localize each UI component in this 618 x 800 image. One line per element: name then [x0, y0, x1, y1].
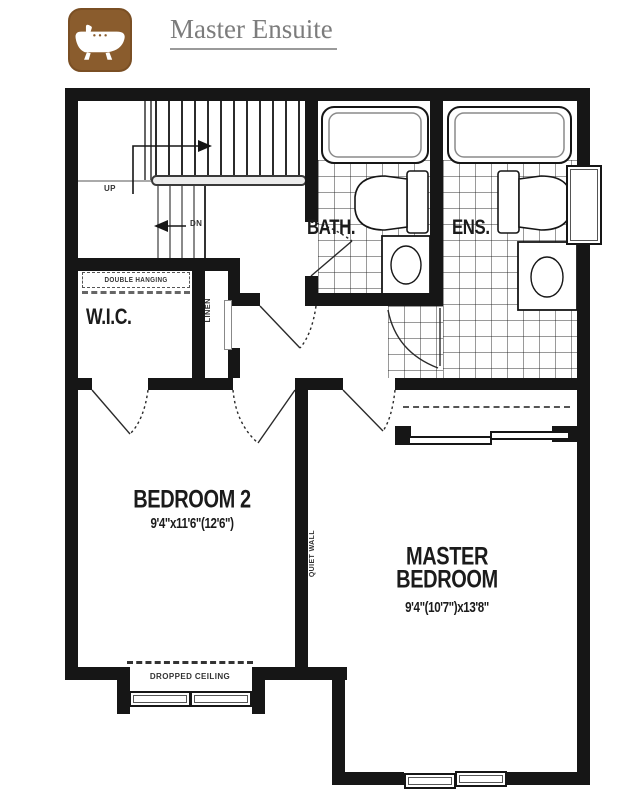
wall: [332, 772, 404, 785]
linen-door: [224, 300, 232, 350]
stair-up-arrowhead: [198, 140, 212, 152]
master-door-arc: [383, 390, 395, 431]
double-hanging-label: DOUBLE HANGING: [104, 277, 167, 284]
ensuite-door-arc: [388, 310, 438, 368]
hall-door-arc: [300, 306, 316, 348]
wall: [430, 101, 443, 306]
wall: [65, 88, 78, 680]
window-pane: [570, 169, 598, 241]
wall: [148, 378, 233, 390]
wic-door-leaf: [92, 390, 130, 434]
stair-up-arrow: [133, 146, 198, 194]
bath-label: BATH.: [307, 216, 367, 240]
ensuite-window: [566, 165, 602, 245]
window-pane: [408, 777, 452, 785]
bedroom2-dimensions: 9'4"x11'6"(12'6"): [140, 516, 244, 532]
bath-door-leaf: [311, 241, 352, 276]
stairs-up-label: UP: [104, 184, 116, 193]
closet-shelf-dashed-line: [403, 406, 570, 408]
floor-plan-page: Master Ensuite: [0, 0, 618, 800]
closet-rod-dashed-line: [82, 291, 190, 294]
bath-tub: [322, 107, 428, 163]
master-label-line2: BEDROOM: [383, 566, 510, 595]
window-pane: [133, 695, 187, 703]
ensuite-vanity-sink: [518, 242, 577, 310]
wall: [65, 258, 240, 271]
linen-label: LINEN: [203, 298, 212, 323]
window-pane: [459, 775, 503, 783]
bedroom2-door-leaf: [258, 390, 295, 443]
wall: [305, 101, 318, 222]
bedroom2-label: BEDROOM 2: [119, 486, 266, 515]
closet-bypass-door: [490, 431, 570, 440]
dropped-ceiling-dashed-line: [127, 661, 253, 664]
stair-dn-arrowhead: [154, 220, 168, 232]
wic-label: W.I.C.: [86, 304, 143, 330]
bay-window: [190, 691, 252, 707]
quiet-wall-label: QUIET WALL: [309, 530, 316, 577]
ensuite-label: ENS.: [452, 216, 499, 240]
wall: [507, 772, 590, 785]
wall: [192, 258, 205, 390]
master-door-leaf: [343, 390, 383, 431]
wall: [228, 258, 240, 302]
ensuite-toilet: [498, 171, 571, 233]
wall: [308, 378, 343, 390]
bath-vanity-sink: [382, 236, 430, 294]
bedroom2-door-arc: [233, 390, 258, 443]
hall-door-leaf: [260, 306, 300, 348]
master-dimensions: 9'4"(10'7")x13'8": [395, 600, 500, 616]
double-hanging-box: DOUBLE HANGING: [82, 272, 190, 288]
wall: [395, 378, 577, 390]
wic-door-arc: [130, 390, 148, 434]
wall: [316, 293, 443, 306]
window-pane: [194, 695, 248, 703]
master-window: [455, 771, 507, 787]
wall: [78, 378, 92, 390]
dropped-ceiling-label: DROPPED CEILING: [150, 672, 230, 681]
ensuite-tub: [448, 107, 571, 163]
wall: [332, 667, 345, 785]
master-window: [404, 773, 456, 789]
quiet-wall: [295, 378, 308, 680]
stairs-dn-label: DN: [190, 219, 202, 228]
wall: [65, 88, 590, 101]
wall: [228, 348, 240, 378]
bay-window: [129, 691, 191, 707]
closet-bypass-door: [408, 436, 492, 445]
